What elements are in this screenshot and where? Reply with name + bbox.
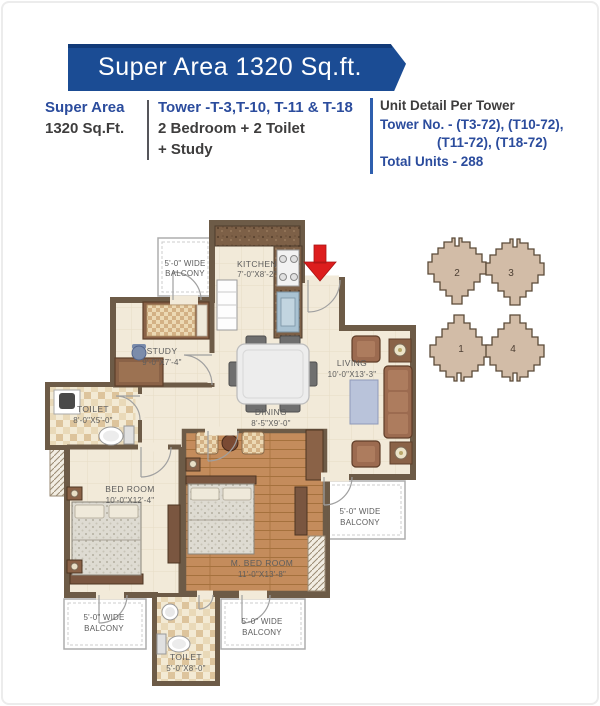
balcony-tl-label: BALCONY: [165, 269, 205, 278]
floor-plan: KITCHEN 7'-0"X8'-2" 5'-0" WIDE BALCONY S…: [0, 0, 600, 706]
balcony-bm-size: 5'-0" WIDE: [241, 617, 282, 626]
toilet-bottom-label: TOILET: [170, 652, 202, 662]
dining-furniture: [229, 336, 317, 412]
toilet-left-dims: 8'-0"X5'-0": [73, 416, 112, 425]
keyplan-number-4: 4: [510, 344, 516, 355]
dining-label: DINING: [255, 407, 287, 417]
study-dims: 9'-0"X7'-4": [142, 358, 181, 367]
wardrobe: [168, 505, 180, 563]
floorplan-page: Super Area 1320 Sq.ft. Super Area 1320 S…: [0, 0, 600, 706]
master-bedroom-dims: 11'-0"X13'-8": [238, 570, 286, 579]
kitchen-label: KITCHEN: [237, 259, 277, 269]
living-label: LIVING: [337, 358, 367, 368]
balcony-bl-label: BALCONY: [84, 624, 124, 633]
balcony-right-label: BALCONY: [340, 518, 380, 527]
wardrobe: [306, 430, 323, 480]
keyplan-number-3: 3: [508, 268, 514, 279]
chair: [242, 432, 264, 454]
kitchen-dims: 7'-0"X8'-2": [237, 270, 276, 279]
master-bedroom-label: M. BED ROOM: [231, 558, 294, 568]
balcony-right-size: 5'-0" WIDE: [339, 507, 380, 516]
dining-table: [237, 344, 309, 404]
living-rug: [350, 380, 378, 424]
toilet-left-label: TOILET: [77, 404, 109, 414]
living-dims: 10'-0"X13'-3": [328, 370, 377, 379]
tower-key-plan: [428, 238, 544, 381]
keyplan-number-2: 2: [454, 268, 460, 279]
bedroom-label: BED ROOM: [105, 484, 154, 494]
dresser: [295, 487, 307, 535]
ledge-hatch-right: [308, 536, 325, 591]
keyplan-unit-3: [486, 239, 544, 305]
toilet-bottom-dims: 5'-0"X8'-0": [166, 664, 205, 673]
balcony-tl-size: 5'-0" WIDE: [164, 259, 205, 268]
bedroom-dims: 10'-0"X12'-4": [106, 496, 155, 505]
keyplan-number-1: 1: [458, 344, 464, 355]
balcony-bl-size: 5'-0" WIDE: [83, 613, 124, 622]
dining-dims: 8'-5"X9'-0": [251, 419, 290, 428]
study-label: STUDY: [147, 346, 178, 356]
balcony-bm-label: BALCONY: [242, 628, 282, 637]
